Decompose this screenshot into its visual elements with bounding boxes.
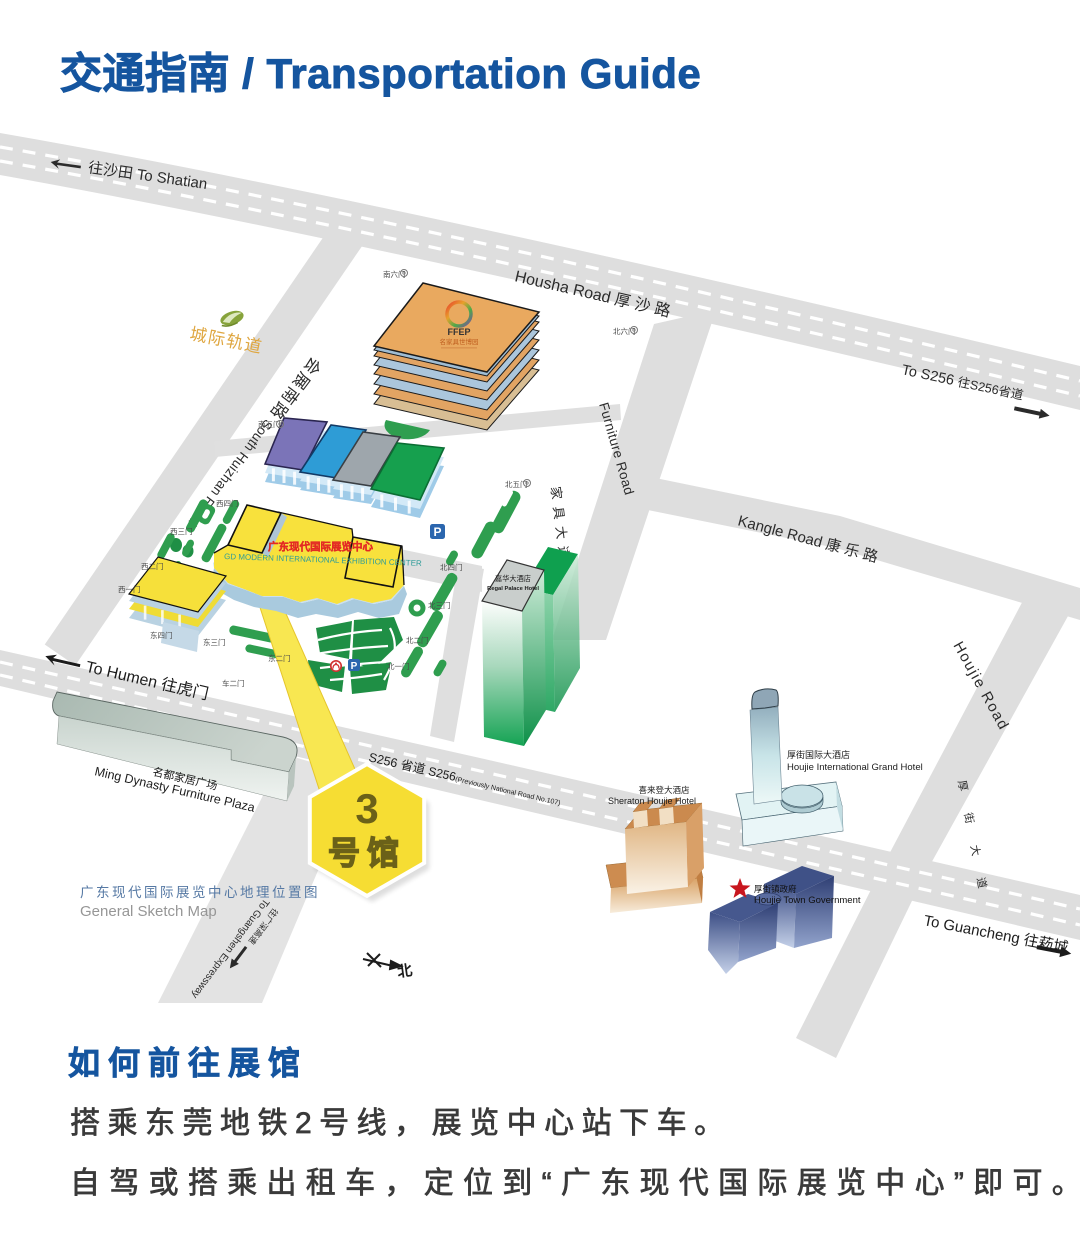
- svg-text:西二门: 西二门: [141, 562, 164, 571]
- svg-text:北: 北: [396, 962, 413, 981]
- svg-text:喜来登大酒店: 喜来登大酒店: [638, 785, 690, 795]
- svg-text:如何前往展馆: 如何前往展馆: [68, 1045, 308, 1081]
- svg-text:南五门: 南五门: [258, 419, 281, 429]
- svg-text:厚街国际大酒店: 厚街国际大酒店: [787, 749, 850, 760]
- svg-text:北一门: 北一门: [387, 662, 410, 671]
- svg-text:北二门: 北二门: [406, 636, 429, 645]
- svg-text:FFEP: FFEP: [447, 327, 470, 337]
- svg-text:广东现代国际展览中心地理位置图: 广东现代国际展览中心地理位置图: [80, 885, 320, 900]
- svg-text:广东现代国际展览中心: 广东现代国际展览中心: [268, 540, 373, 553]
- svg-text:东四门: 东四门: [150, 630, 173, 640]
- svg-text:Houjie International Grand Hot: Houjie International Grand Hotel: [787, 762, 923, 773]
- svg-text:3: 3: [355, 785, 378, 832]
- svg-text:东三门: 东三门: [203, 637, 226, 647]
- svg-text:西四门: 西四门: [216, 499, 239, 508]
- svg-text:车二门: 车二门: [222, 678, 245, 688]
- svg-text:General Sketch Map: General Sketch Map: [80, 903, 217, 920]
- svg-text:厚街镇政府: 厚街镇政府: [754, 884, 797, 894]
- svg-text:Regal Palace Hotel: Regal Palace Hotel: [487, 586, 539, 592]
- svg-text:搭乘东莞地铁2号线，展览中心站下车。: 搭乘东莞地铁2号线，展览中心站下车。: [70, 1107, 732, 1140]
- svg-text:名家具世博园: 名家具世博园: [440, 337, 479, 346]
- svg-text:西三门: 西三门: [170, 527, 193, 536]
- svg-text:交通指南 / Transportation Guide: 交通指南 / Transportation Guide: [60, 50, 701, 97]
- svg-text:Houjie Town Government: Houjie Town Government: [754, 895, 861, 906]
- svg-text:自驾或搭乘出租车，定位到“广东现代国际展览中心”即可。: 自驾或搭乘出租车，定位到“广东现代国际展览中心”即可。: [70, 1167, 1080, 1200]
- svg-text:北四门: 北四门: [440, 563, 463, 572]
- svg-text:西一门: 西一门: [118, 585, 141, 594]
- svg-text:Sheraton Houjie Hotel: Sheraton Houjie Hotel: [608, 796, 696, 806]
- svg-text:P: P: [351, 661, 358, 672]
- svg-text:P: P: [433, 525, 441, 539]
- svg-text:号馆: 号馆: [328, 835, 406, 871]
- svg-text:东二门: 东二门: [268, 653, 291, 663]
- svg-text:嘉华大酒店: 嘉华大酒店: [495, 574, 531, 583]
- svg-text:北三门: 北三门: [428, 601, 451, 610]
